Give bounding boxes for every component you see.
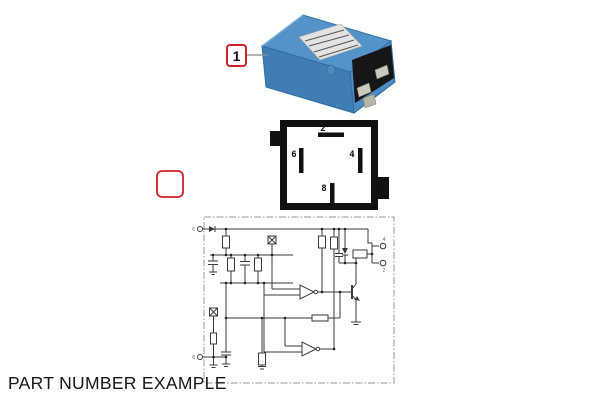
pin-6-label: 6 bbox=[291, 150, 296, 160]
schematic-diode-rail bbox=[209, 226, 215, 232]
terminal-top-left-label: 6 bbox=[192, 227, 195, 233]
relay-mounting-peg bbox=[327, 65, 335, 75]
schematic-dashed-border bbox=[204, 217, 394, 383]
pin-6-blade bbox=[299, 148, 304, 173]
schematic-crystal-boxes bbox=[210, 236, 277, 316]
relay-photo bbox=[262, 15, 395, 113]
pin-2-blade bbox=[318, 133, 344, 138]
pin-diagram: 2 6 4 8 bbox=[270, 120, 389, 210]
callout-1-label: 1 bbox=[233, 48, 241, 64]
terminal-right-bottom-label: 2 bbox=[383, 268, 386, 274]
circuit-schematic: 6 8 4 2 bbox=[192, 217, 394, 383]
pin-diagram-tab-right bbox=[377, 177, 389, 199]
empty-callout-box bbox=[157, 171, 183, 197]
schematic-relay-coil bbox=[353, 250, 367, 258]
terminal-bottom-left-label: 8 bbox=[192, 355, 195, 361]
figure-canvas: 1 2 6 4 8 bbox=[0, 0, 600, 400]
schematic-terminals: 6 8 4 2 bbox=[192, 227, 386, 362]
schematic-junction-dots bbox=[212, 228, 374, 359]
schematic-gate-lower bbox=[302, 342, 320, 356]
schematic-gate-upper bbox=[300, 285, 318, 299]
pin-8-label: 8 bbox=[321, 184, 326, 194]
pin-4-label: 4 bbox=[349, 150, 355, 160]
pin-8-blade bbox=[330, 183, 335, 205]
terminal-right-top-label: 4 bbox=[383, 237, 386, 243]
pin-diagram-tab-left bbox=[270, 131, 281, 146]
page-title: PART NUMBER EXAMPLE bbox=[8, 373, 227, 393]
pin-4-blade bbox=[358, 148, 363, 173]
